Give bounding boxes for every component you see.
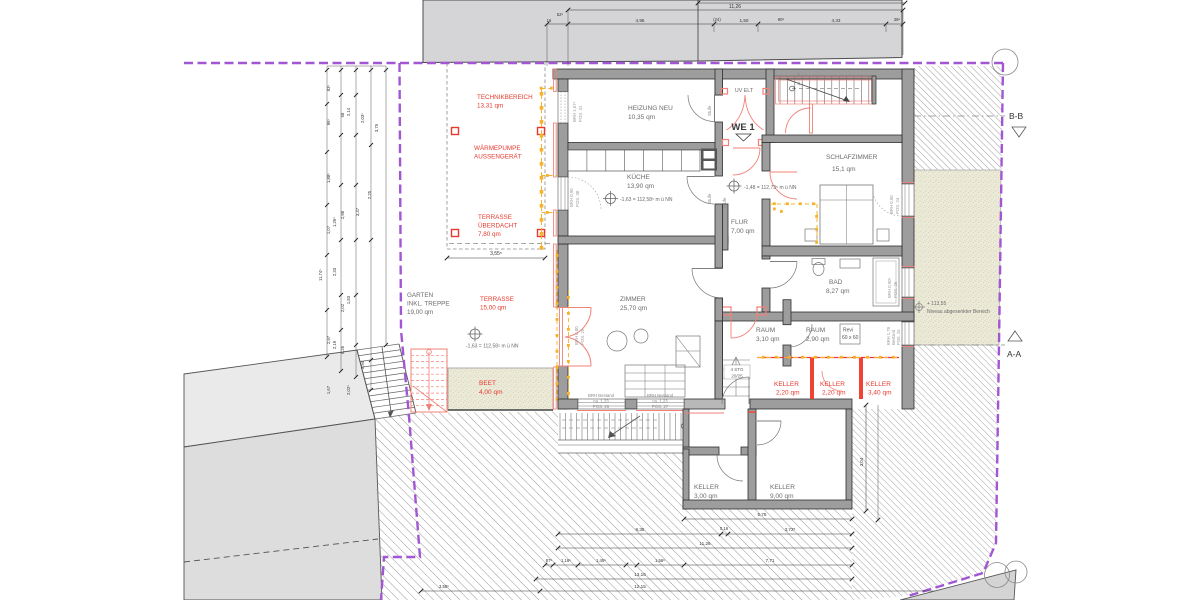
svg-text:2,03⁵: 2,03⁵ bbox=[360, 113, 365, 123]
svg-text:Revi: Revi bbox=[843, 328, 853, 334]
svg-text:+ 113,55: + 113,55 bbox=[927, 301, 946, 307]
svg-text:1,07: 1,07 bbox=[326, 225, 331, 234]
svg-text:POS. 29: POS. 29 bbox=[580, 328, 585, 345]
svg-text:POS. 27: POS. 27 bbox=[652, 404, 669, 409]
svg-text:HEIZUNG NEU: HEIZUNG NEU bbox=[628, 105, 673, 112]
svg-text:2,98: 2,98 bbox=[340, 210, 345, 219]
svg-text:2,20 qm: 2,20 qm bbox=[822, 390, 846, 397]
svg-text:2,20 qm: 2,20 qm bbox=[776, 390, 800, 397]
svg-text:RAUM: RAUM bbox=[756, 327, 775, 334]
svg-text:1,56⁵: 1,56⁵ bbox=[655, 558, 665, 563]
svg-text:2,90 qm: 2,90 qm bbox=[806, 336, 830, 343]
svg-text:19,00 qm: 19,00 qm bbox=[407, 309, 433, 316]
svg-text:TECHNIKBEREICH: TECHNIKBEREICH bbox=[477, 94, 533, 101]
svg-text:GARTEN: GARTEN bbox=[407, 292, 434, 299]
svg-text:Stufe: Stufe bbox=[707, 105, 712, 116]
svg-text:4,95: 4,95 bbox=[636, 18, 645, 23]
svg-text:36⁵: 36⁵ bbox=[894, 17, 901, 22]
svg-text:13,90 qm: 13,90 qm bbox=[627, 183, 654, 190]
svg-text:1,50: 1,50 bbox=[740, 18, 749, 23]
svg-text:9,00 qm: 9,00 qm bbox=[770, 493, 794, 500]
svg-text:1,26⁵: 1,26⁵ bbox=[332, 217, 337, 227]
svg-text:5,75: 5,75 bbox=[758, 512, 767, 517]
svg-text:96⁵: 96⁵ bbox=[326, 119, 331, 126]
svg-text:25,70 qm: 25,70 qm bbox=[620, 305, 647, 312]
svg-text:UV ELT: UV ELT bbox=[735, 88, 754, 94]
svg-text:Stufe: Stufe bbox=[707, 193, 712, 204]
svg-text:12,15: 12,15 bbox=[634, 584, 646, 589]
svg-text:18 STG: 18 STG bbox=[796, 72, 801, 86]
svg-text:POS. 26: POS. 26 bbox=[896, 329, 901, 345]
svg-text:POS. 30: POS. 30 bbox=[575, 190, 580, 207]
svg-text:52⁵: 52⁵ bbox=[557, 12, 564, 17]
svg-text:ZIMMER: ZIMMER bbox=[620, 296, 646, 303]
svg-text:2,02: 2,02 bbox=[340, 303, 345, 312]
svg-text:ÜBERDACHT: ÜBERDACHT bbox=[478, 222, 517, 230]
svg-text:3,04: 3,04 bbox=[859, 457, 864, 466]
svg-text:Stufe: Stufe bbox=[722, 197, 727, 208]
svg-text:POS. 25: POS. 25 bbox=[893, 281, 898, 298]
svg-text:2,33: 2,33 bbox=[332, 267, 337, 276]
svg-text:15,00 qm: 15,00 qm bbox=[480, 305, 506, 312]
svg-text:16: 16 bbox=[547, 18, 552, 23]
svg-text:11,26: 11,26 bbox=[699, 541, 711, 546]
svg-text:BRH 0,00: BRH 0,00 bbox=[574, 326, 579, 345]
svg-text:-1,48 = 112,73⁵ m ü NN: -1,48 = 112,73⁵ m ü NN bbox=[744, 185, 797, 191]
svg-text:POS. 31: POS. 31 bbox=[578, 105, 583, 122]
svg-text:AUSSENGERÄT: AUSSENGERÄT bbox=[474, 153, 522, 161]
svg-text:A-A: A-A bbox=[1007, 349, 1022, 359]
svg-text:10,35 qm: 10,35 qm bbox=[628, 114, 655, 121]
svg-text:90⁵: 90⁵ bbox=[778, 17, 785, 22]
svg-text:2,02⁵: 2,02⁵ bbox=[346, 385, 351, 395]
svg-text:4 STG: 4 STG bbox=[730, 367, 744, 372]
svg-text:5,26: 5,26 bbox=[340, 345, 345, 354]
svg-text:BRH 1,57⁵: BRH 1,57⁵ bbox=[572, 101, 577, 122]
svg-text:KELLER: KELLER bbox=[770, 484, 795, 491]
svg-text:B-B: B-B bbox=[1009, 111, 1024, 121]
svg-text:1,67: 1,67 bbox=[326, 385, 331, 394]
svg-text:13,31 qm: 13,31 qm bbox=[477, 103, 503, 110]
svg-text:TERRASSE: TERRASSE bbox=[480, 296, 514, 303]
svg-text:-1,63 = 112,58⁵ m ü NN: -1,63 = 112,58⁵ m ü NN bbox=[620, 197, 673, 203]
svg-text:1,45⁵: 1,45⁵ bbox=[596, 558, 606, 563]
svg-text:0,16: 0,16 bbox=[720, 526, 729, 531]
svg-text:3,55⁵: 3,55⁵ bbox=[490, 251, 502, 257]
svg-text:KELLER: KELLER bbox=[866, 381, 891, 388]
svg-text:3,75: 3,75 bbox=[374, 123, 379, 132]
svg-text:4,00 qm: 4,00 qm bbox=[479, 389, 503, 396]
svg-text:KÜCHE: KÜCHE bbox=[627, 173, 650, 181]
svg-text:3,72⁵: 3,72⁵ bbox=[785, 527, 796, 532]
svg-text:SCHLAFZIMMER: SCHLAFZIMMER bbox=[826, 154, 878, 161]
svg-text:POS. 24: POS. 24 bbox=[895, 197, 900, 214]
svg-text:1,16⁵: 1,16⁵ bbox=[561, 558, 571, 563]
svg-text:INKL. TREPPE: INKL. TREPPE bbox=[407, 301, 450, 308]
svg-text:83⁵: 83⁵ bbox=[326, 85, 331, 92]
svg-text:2,97: 2,97 bbox=[326, 335, 331, 344]
svg-text:BRH 0,90⁵: BRH 0,90⁵ bbox=[887, 277, 892, 298]
svg-text:8,27 qm: 8,27 qm bbox=[826, 288, 850, 295]
svg-text:3,40 qm: 3,40 qm bbox=[868, 390, 892, 397]
svg-text:7,00 qm: 7,00 qm bbox=[731, 228, 755, 235]
svg-text:60 x 60: 60 x 60 bbox=[842, 335, 859, 341]
svg-text:2,14: 2,14 bbox=[346, 107, 351, 116]
svg-text:3,56⁵: 3,56⁵ bbox=[439, 584, 449, 589]
svg-text:BRH 0,90: BRH 0,90 bbox=[889, 195, 894, 214]
svg-text:WÄRMEPUMPE: WÄRMEPUMPE bbox=[474, 144, 521, 152]
svg-text:POS. 26: POS. 26 bbox=[593, 404, 610, 409]
svg-text:3,37: 3,37 bbox=[355, 207, 360, 216]
svg-text:87⁵: 87⁵ bbox=[546, 558, 553, 563]
svg-text:BEET: BEET bbox=[479, 380, 496, 387]
svg-text:KELLER: KELLER bbox=[694, 484, 719, 491]
svg-text:ca. 1,23: ca. 1,23 bbox=[652, 399, 668, 404]
svg-text:BAD: BAD bbox=[829, 279, 843, 286]
svg-text:-1,63 = 112,58⁵ m ü NN: -1,63 = 112,58⁵ m ü NN bbox=[466, 344, 519, 350]
svg-text:2,19: 2,19 bbox=[332, 340, 337, 349]
svg-text:15,1 qm: 15,1 qm bbox=[832, 166, 856, 173]
svg-text:1,83: 1,83 bbox=[346, 295, 351, 304]
svg-text:9,35: 9,35 bbox=[636, 527, 645, 532]
svg-text:1,88⁵: 1,88⁵ bbox=[326, 173, 331, 183]
svg-text:2,94: 2,94 bbox=[360, 360, 365, 369]
svg-text:3,10 qm: 3,10 qm bbox=[756, 336, 780, 343]
svg-text:BRH 0,90: BRH 0,90 bbox=[569, 188, 574, 207]
svg-text:RAUM: RAUM bbox=[806, 327, 825, 334]
svg-text:3,00 qm: 3,00 qm bbox=[694, 493, 718, 500]
svg-text:2,25: 2,25 bbox=[367, 190, 372, 199]
svg-text:WE 1: WE 1 bbox=[731, 122, 755, 133]
svg-text:ca. 1,23: ca. 1,23 bbox=[593, 399, 609, 404]
svg-text:4,33: 4,33 bbox=[832, 18, 841, 23]
svg-text:TERRASSE: TERRASSE bbox=[478, 214, 512, 221]
svg-text:13,16: 13,16 bbox=[634, 572, 646, 577]
svg-text:Niveau abgesenkter Bereich: Niveau abgesenkter Bereich bbox=[927, 309, 990, 315]
svg-text:11,74⁵: 11,74⁵ bbox=[318, 269, 323, 281]
svg-text:KELLER: KELLER bbox=[774, 381, 799, 388]
svg-text:(24): (24) bbox=[713, 17, 721, 22]
svg-text:11,26: 11,26 bbox=[729, 4, 741, 10]
svg-text:7,80 qm: 7,80 qm bbox=[478, 231, 501, 238]
svg-text:7,71: 7,71 bbox=[766, 558, 775, 563]
svg-text:FLUR: FLUR bbox=[731, 219, 748, 226]
svg-text:KELLER: KELLER bbox=[820, 381, 845, 388]
svg-text:58: 58 bbox=[340, 112, 345, 117]
svg-text:BRH Bestand: BRH Bestand bbox=[588, 393, 615, 398]
